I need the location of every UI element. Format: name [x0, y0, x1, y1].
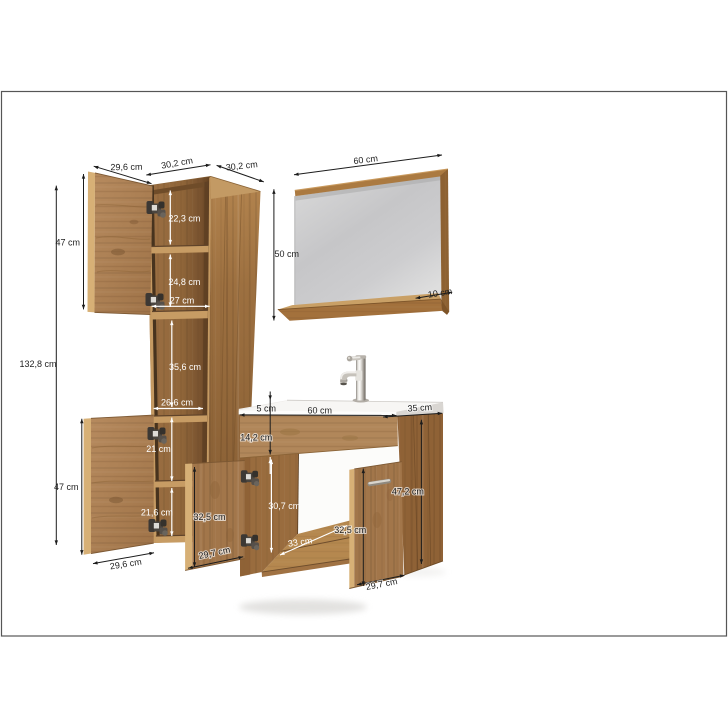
- svg-text:21,6 cm: 21,6 cm: [141, 507, 173, 517]
- svg-text:32,5 cm: 32,5 cm: [193, 512, 225, 522]
- svg-text:132,8 cm: 132,8 cm: [19, 359, 56, 369]
- svg-text:30,7 cm: 30,7 cm: [268, 501, 300, 511]
- svg-text:47 cm: 47 cm: [55, 237, 80, 247]
- svg-text:22,3 cm: 22,3 cm: [168, 213, 200, 223]
- svg-text:29,6 cm: 29,6 cm: [110, 162, 142, 173]
- svg-text:32,5 cm: 32,5 cm: [334, 525, 366, 535]
- svg-text:50 cm: 50 cm: [275, 249, 300, 259]
- svg-text:35 cm: 35 cm: [407, 402, 432, 414]
- svg-text:60 cm: 60 cm: [308, 406, 333, 416]
- svg-text:47 cm: 47 cm: [54, 482, 79, 492]
- svg-text:47,2 cm: 47,2 cm: [392, 486, 424, 496]
- svg-text:35,6 cm: 35,6 cm: [169, 362, 201, 372]
- svg-text:5 cm: 5 cm: [257, 403, 277, 413]
- svg-text:26,6 cm: 26,6 cm: [161, 398, 193, 408]
- svg-text:14,2 cm: 14,2 cm: [240, 433, 272, 443]
- svg-text:21 cm: 21 cm: [146, 444, 171, 454]
- svg-text:24,8 cm: 24,8 cm: [168, 277, 200, 287]
- svg-text:27 cm: 27 cm: [170, 295, 195, 305]
